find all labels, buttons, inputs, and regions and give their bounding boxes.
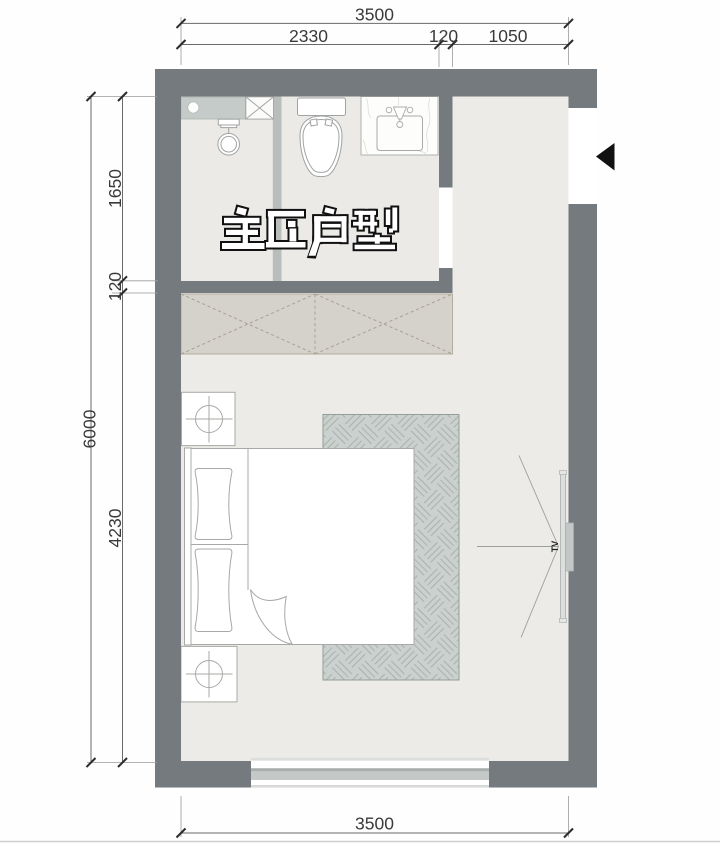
- svg-text:6000: 6000: [80, 409, 100, 448]
- svg-text:1650: 1650: [105, 169, 125, 208]
- svg-text:3500: 3500: [355, 5, 394, 25]
- svg-text:4230: 4230: [105, 508, 125, 547]
- svg-text:TV: TV: [550, 541, 560, 553]
- svg-text:2330: 2330: [289, 26, 328, 46]
- svg-text:3500: 3500: [355, 814, 394, 834]
- svg-text:120: 120: [105, 272, 125, 301]
- svg-text:120: 120: [429, 26, 458, 46]
- svg-text:1050: 1050: [489, 26, 528, 46]
